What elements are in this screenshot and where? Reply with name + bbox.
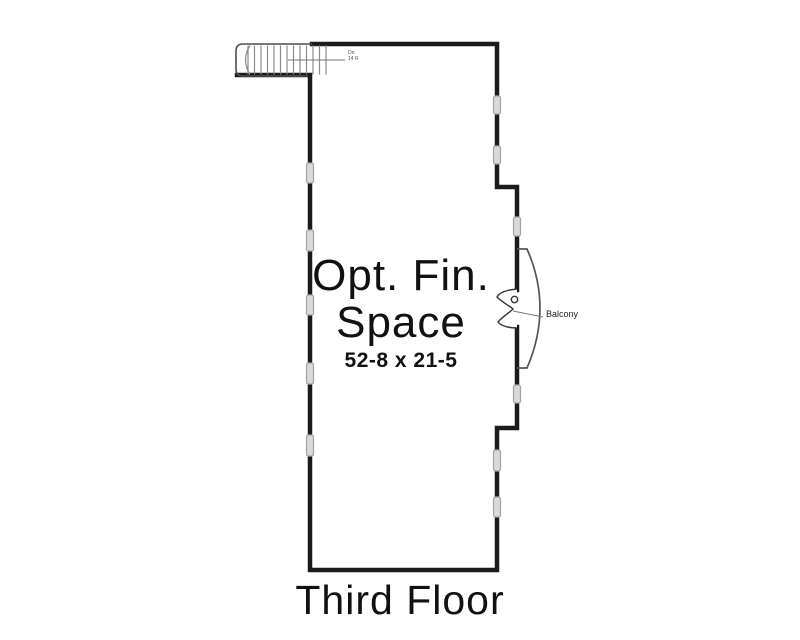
- room-label: Opt. Fin. Space 52-8 x 21-5: [312, 252, 490, 372]
- window-marker: [307, 230, 314, 251]
- room-dimensions: 52-8 x 21-5: [312, 349, 490, 372]
- window-marker: [494, 497, 501, 517]
- window-marker: [494, 96, 501, 114]
- room-name-line2: Space: [312, 299, 490, 346]
- room-name-line1: Opt. Fin.: [312, 252, 490, 299]
- balcony-arc: [517, 249, 540, 368]
- balcony-leader-line: [513, 311, 543, 317]
- stair-annotation-line2: 14 R: [348, 56, 359, 62]
- balcony-door-swing-icon: [497, 289, 517, 328]
- stair-annotation: Dn 14 R: [348, 50, 359, 62]
- window-marker: [514, 385, 521, 403]
- window-marker: [514, 217, 521, 236]
- staircase: [236, 44, 345, 76]
- balcony: [497, 249, 543, 368]
- plan-title: Third Floor: [295, 578, 504, 622]
- window-marker: [494, 450, 501, 471]
- balcony-label: Balcony: [546, 309, 578, 319]
- window-marker: [307, 435, 314, 456]
- door-pivot-icon: [511, 296, 517, 302]
- window-marker: [494, 146, 501, 164]
- floor-plan-canvas: Opt. Fin. Space 52-8 x 21-5 Balcony Dn 1…: [0, 0, 800, 640]
- window-marker: [307, 163, 314, 183]
